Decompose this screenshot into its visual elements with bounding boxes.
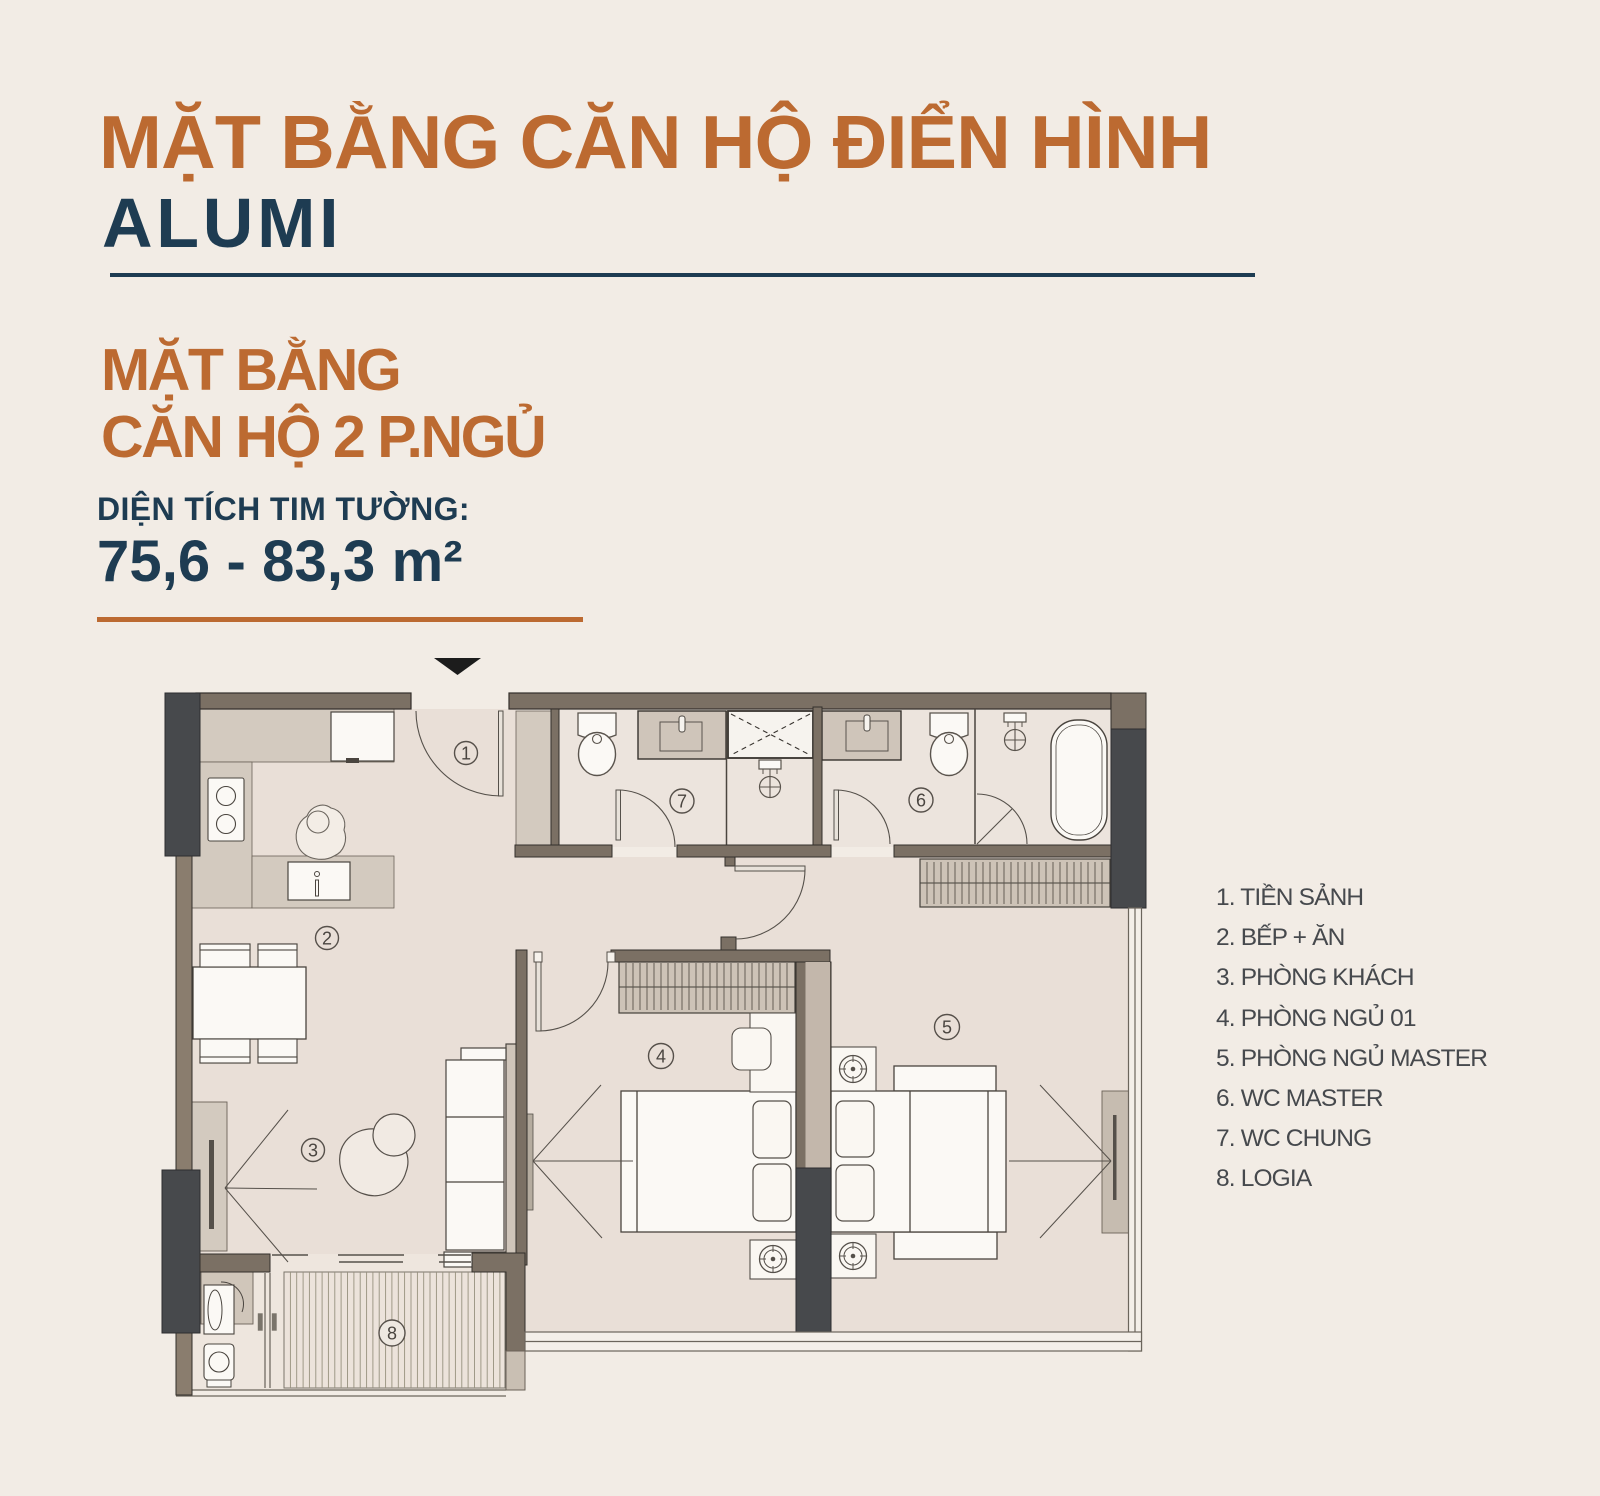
svg-text:7: 7 (677, 792, 687, 812)
svg-text:4: 4 (656, 1047, 666, 1067)
svg-text:1: 1 (461, 744, 471, 764)
svg-text:6: 6 (916, 791, 926, 811)
svg-text:8: 8 (387, 1324, 397, 1344)
svg-text:5: 5 (942, 1018, 952, 1038)
svg-text:3: 3 (308, 1141, 318, 1161)
svg-text:2: 2 (322, 929, 332, 949)
